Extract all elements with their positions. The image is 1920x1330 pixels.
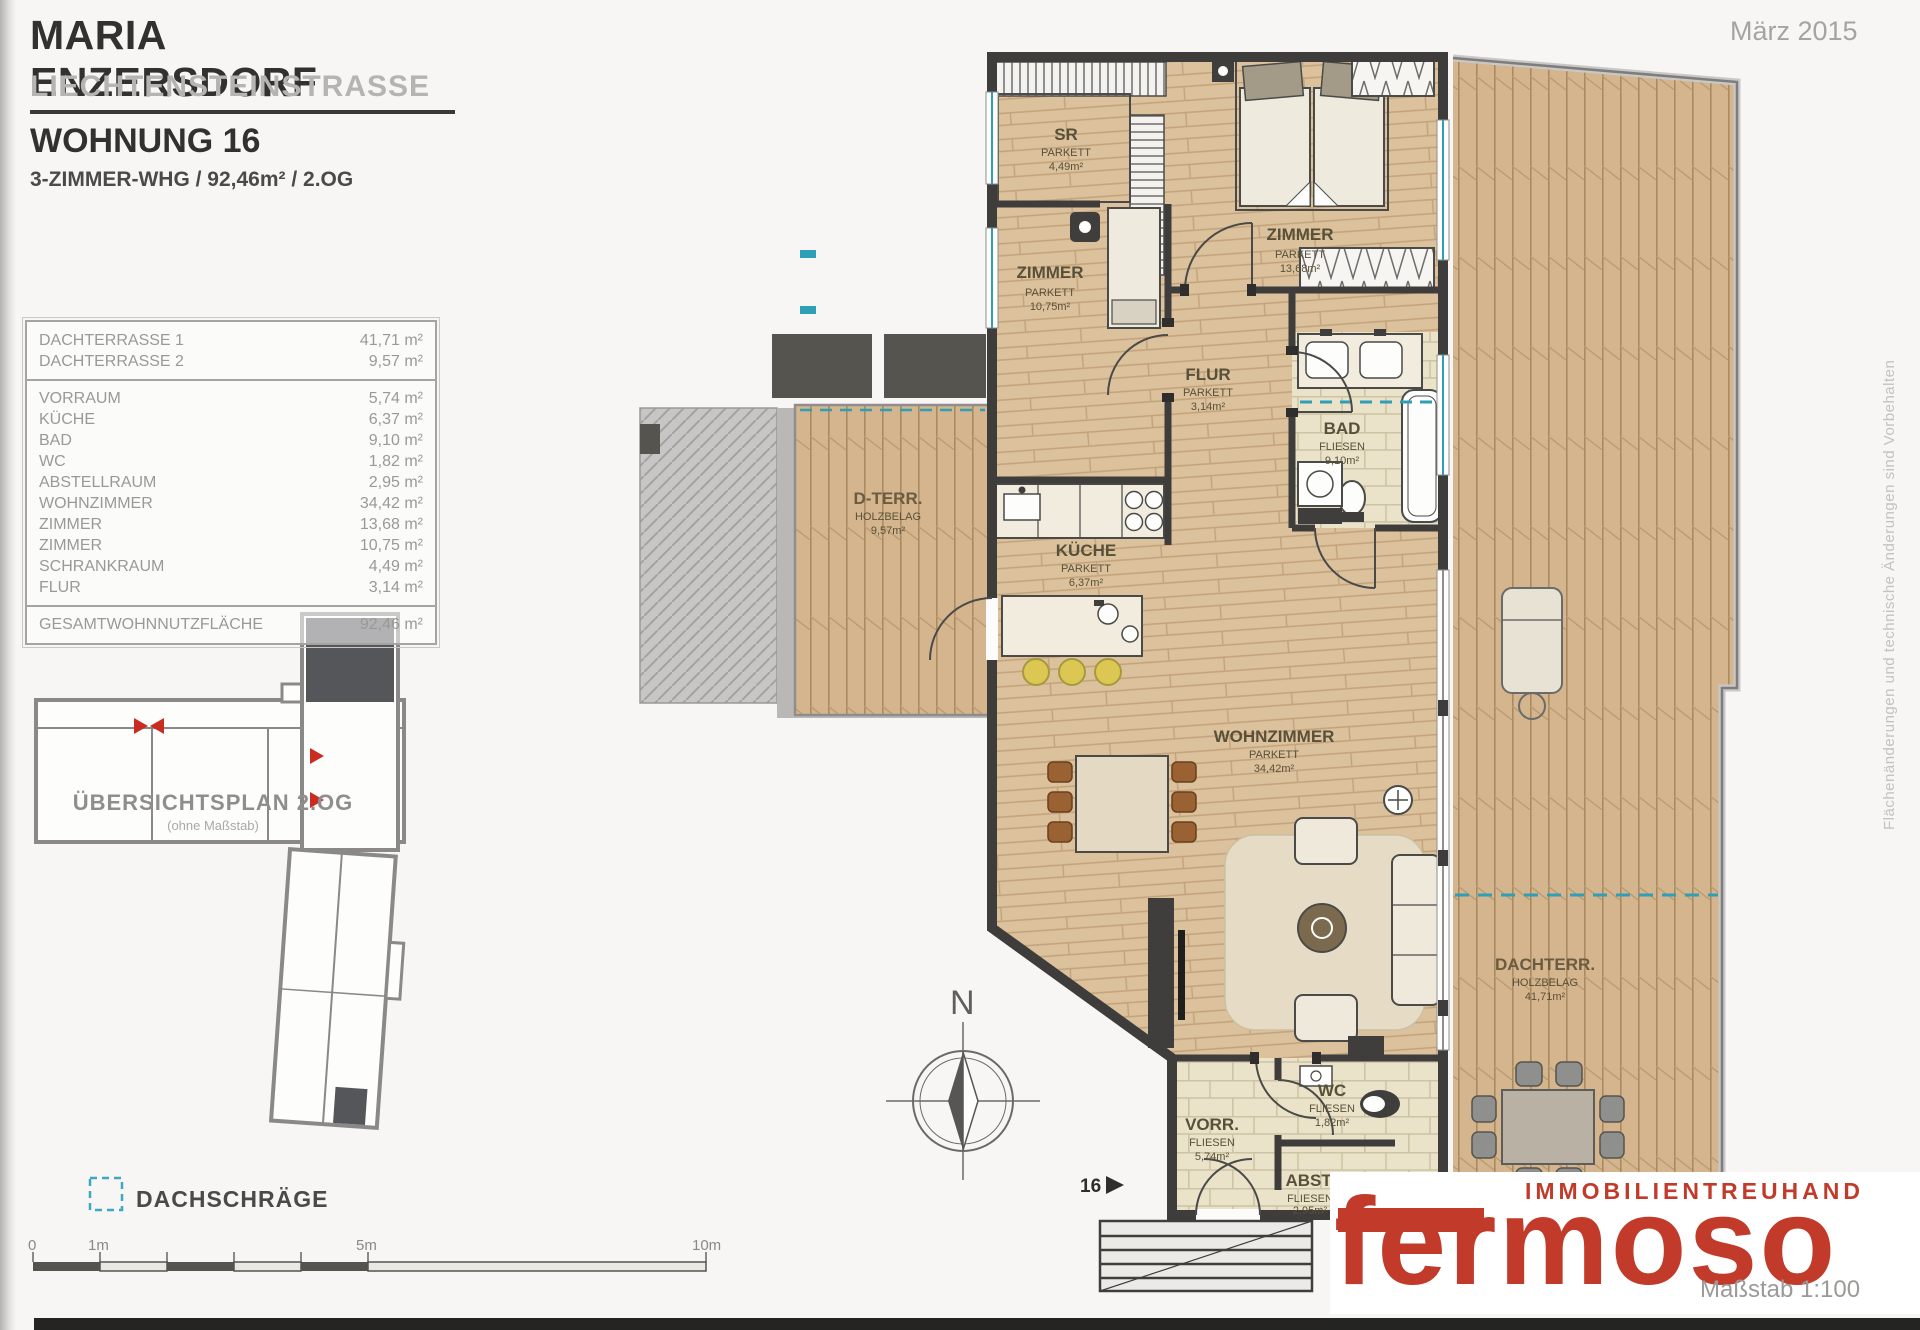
overview-plan — [36, 614, 410, 1129]
dining-set — [1048, 756, 1196, 852]
table-row: FLUR3,14 m² — [39, 577, 423, 598]
row-label: DACHTERRASSE 1 — [39, 330, 184, 351]
svg-text:0: 0 — [28, 1237, 36, 1254]
table-row: KÜCHE6,37 m² — [39, 409, 423, 430]
main-floor-plan: 16 N SR PARKETT 4,49m² ZIMM — [640, 57, 1737, 1291]
compass-label: N — [950, 984, 975, 1022]
wardrobe — [1352, 60, 1434, 96]
svg-text:ZIMMER: ZIMMER — [1016, 263, 1083, 282]
project-subtitle: LIECHTENSTEINSTRASSE — [30, 70, 430, 104]
table-row: SCHRANKRAUM4,49 m² — [39, 556, 423, 577]
row-value: 2,95 m² — [369, 472, 423, 493]
terrace-section: DACHTERRASSE 1 41,71 m² DACHTERRASSE 2 9… — [27, 328, 435, 374]
total-value: 92,46 m² — [360, 614, 423, 635]
row-label: WOHNZIMMER — [39, 493, 153, 514]
svg-text:DACHTERR.: DACHTERR. — [1495, 955, 1595, 974]
svg-text:D-TERR.: D-TERR. — [854, 489, 923, 508]
scale-bar: 0 1m 5m 10m — [28, 1237, 721, 1271]
dachschraege-label: DACHSCHRÄGE — [136, 1186, 328, 1213]
svg-text:WOHNZIMMER: WOHNZIMMER — [1214, 727, 1335, 746]
entry-arrow-icon — [1106, 1176, 1124, 1194]
svg-text:PARKETT: PARKETT — [1275, 249, 1325, 261]
brand-f-bar — [1338, 1208, 1484, 1232]
table-row: ZIMMER10,75 m² — [39, 535, 423, 556]
row-value: 9,10 m² — [369, 430, 423, 451]
svg-text:PARKETT: PARKETT — [1025, 287, 1075, 299]
area-table: DACHTERRASSE 1 41,71 m² DACHTERRASSE 2 9… — [25, 320, 437, 645]
d-terrasse-deck — [795, 405, 990, 715]
row-value: 3,14 m² — [369, 577, 423, 598]
row-label: ABSTELLRAUM — [39, 472, 156, 493]
unit-specs: 3-ZIMMER-WHG / 92,46m² / 2.OG — [30, 168, 353, 192]
row-label: KÜCHE — [39, 409, 95, 430]
table-row: BAD9,10 m² — [39, 430, 423, 451]
svg-text:34,42m²: 34,42m² — [1254, 763, 1295, 775]
svg-text:PARKETT: PARKETT — [1249, 749, 1299, 761]
table-divider — [27, 605, 435, 607]
svg-text:HOLZBELAG: HOLZBELAG — [1512, 977, 1578, 989]
svg-text:PARKETT: PARKETT — [1061, 563, 1111, 575]
table-row: VORRAUM5,74 m² — [39, 388, 423, 409]
svg-text:FLIESEN: FLIESEN — [1309, 1103, 1355, 1115]
table-row: ZIMMER13,68 m² — [39, 514, 423, 535]
room-label-bad: BAD FLIESEN 9,10m² — [1319, 419, 1365, 467]
svg-text:VORR.: VORR. — [1185, 1115, 1239, 1134]
svg-text:FLIESEN: FLIESEN — [1287, 1193, 1333, 1205]
plan-date: März 2015 — [1730, 16, 1858, 47]
scan-edge-bottom — [34, 1318, 1920, 1330]
row-label: VORRAUM — [39, 388, 121, 409]
overview-subtitle: (ohne Maßstab) — [58, 818, 368, 833]
row-label: ZIMMER — [39, 535, 102, 556]
tv-board — [1148, 898, 1174, 1048]
svg-text:1,82m²: 1,82m² — [1315, 1117, 1350, 1129]
row-value: 41,71 m² — [360, 330, 423, 351]
svg-text:PARKETT: PARKETT — [1041, 147, 1091, 159]
svg-text:3,14m²: 3,14m² — [1191, 401, 1226, 413]
svg-text:HOLZBELAG: HOLZBELAG — [855, 511, 921, 523]
svg-text:5,74m²: 5,74m² — [1195, 1151, 1230, 1163]
total-label: GESAMTWOHNNUTZFLÄCHE — [39, 614, 263, 635]
compass: N — [886, 984, 1040, 1180]
scan-edge-left — [0, 0, 16, 1330]
floorplan-document: 0 1m 5m 10m — [0, 0, 1920, 1330]
table-row: DACHTERRASSE 2 9,57 m² — [39, 351, 423, 372]
svg-text:BAD: BAD — [1324, 419, 1361, 438]
stairwell — [1100, 1221, 1312, 1291]
row-label: ZIMMER — [39, 514, 102, 535]
svg-text:6,37m²: 6,37m² — [1069, 577, 1104, 589]
svg-text:13,68m²: 13,68m² — [1280, 263, 1321, 275]
svg-text:10m: 10m — [692, 1237, 721, 1254]
svg-text:FLIESEN: FLIESEN — [1319, 441, 1365, 453]
svg-text:10,75m²: 10,75m² — [1030, 301, 1071, 313]
neighbour-wall — [772, 334, 872, 398]
svg-text:1m: 1m — [88, 1237, 109, 1254]
row-value: 34,42 m² — [360, 493, 423, 514]
svg-text:KÜCHE: KÜCHE — [1056, 541, 1116, 560]
unit-title: WOHNUNG 16 — [30, 122, 260, 161]
svg-text:5m: 5m — [356, 1237, 377, 1254]
svg-text:ABST.: ABST. — [1285, 1171, 1334, 1190]
svg-text:FLUR: FLUR — [1185, 365, 1230, 384]
unit-entry-marker: 16 — [1080, 1176, 1101, 1197]
svg-text:WC: WC — [1318, 1081, 1346, 1100]
row-label: WC — [39, 451, 66, 472]
disclaimer-note: Flächenänderungen und technische Änderun… — [1881, 350, 1898, 830]
wardrobe — [996, 62, 1166, 96]
table-total-row: GESAMTWOHNNUTZFLÄCHE 92,46 m² — [39, 614, 423, 635]
table-row: ABSTELLRAUM2,95 m² — [39, 472, 423, 493]
row-value: 5,74 m² — [369, 388, 423, 409]
row-value: 4,49 m² — [369, 556, 423, 577]
scale-note: Maßstab 1:100 — [1700, 1276, 1860, 1304]
svg-text:41,71m²: 41,71m² — [1525, 991, 1566, 1003]
row-value: 10,75 m² — [360, 535, 423, 556]
row-value: 9,57 m² — [369, 351, 423, 372]
table-row: DACHTERRASSE 1 41,71 m² — [39, 330, 423, 351]
row-label: DACHTERRASSE 2 — [39, 351, 184, 372]
table-row: WOHNZIMMER34,42 m² — [39, 493, 423, 514]
overview-title: ÜBERSICHTSPLAN 2.OG — [58, 790, 368, 816]
plan-canvas: 0 1m 5m 10m — [0, 0, 1920, 1330]
svg-text:PARKETT: PARKETT — [1183, 387, 1233, 399]
row-label: FLUR — [39, 577, 81, 598]
row-value: 13,68 m² — [360, 514, 423, 535]
dachterrasse-deck — [1453, 58, 1737, 1205]
row-value: 6,37 m² — [369, 409, 423, 430]
bar-stool — [1023, 659, 1049, 685]
svg-text:ZIMMER: ZIMMER — [1266, 225, 1333, 244]
row-value: 1,82 m² — [369, 451, 423, 472]
row-label: SCHRANKRAUM — [39, 556, 164, 577]
svg-text:9,10m²: 9,10m² — [1325, 455, 1360, 467]
svg-text:9,57m²: 9,57m² — [871, 525, 906, 537]
dachschraege-icon — [90, 1178, 122, 1210]
table-row: WC1,82 m² — [39, 451, 423, 472]
svg-text:4,49m²: 4,49m² — [1049, 161, 1084, 173]
table-divider — [27, 379, 435, 381]
svg-text:FLIESEN: FLIESEN — [1189, 1137, 1235, 1149]
svg-text:SR: SR — [1054, 125, 1078, 144]
row-label: BAD — [39, 430, 72, 451]
neighbour-area — [640, 408, 777, 703]
svg-text:2,95m²: 2,95m² — [1293, 1205, 1328, 1217]
rooms-section: VORRAUM5,74 m² KÜCHE6,37 m² BAD9,10 m² W… — [27, 386, 435, 600]
